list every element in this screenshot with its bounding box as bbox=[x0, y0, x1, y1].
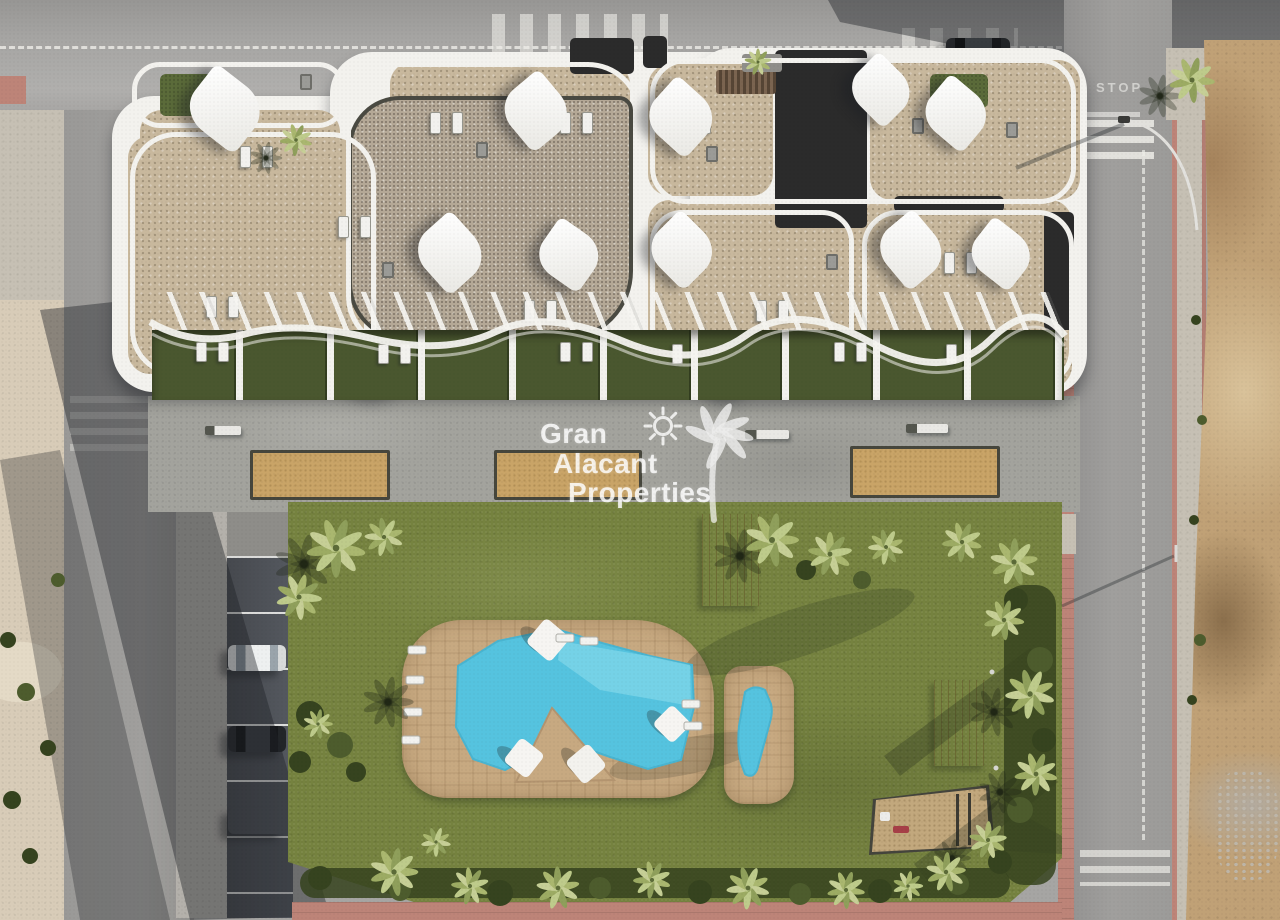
aerial-property-render: STOP bbox=[0, 0, 1280, 920]
palm-trees-group bbox=[266, 43, 1217, 917]
shrub-beds bbox=[0, 315, 1207, 906]
watermark-line-2: Alacant bbox=[553, 448, 658, 480]
watermark-line-1: Gran bbox=[540, 418, 607, 450]
balcony-wavy-edge bbox=[150, 317, 1065, 373]
watermark-sun-icon bbox=[645, 408, 681, 444]
watermark-line-3: Properties bbox=[568, 477, 712, 509]
garden-light bbox=[994, 766, 999, 771]
street-lamp bbox=[1016, 116, 1197, 606]
kids-pool-water bbox=[738, 687, 771, 775]
garden-light bbox=[990, 670, 995, 675]
